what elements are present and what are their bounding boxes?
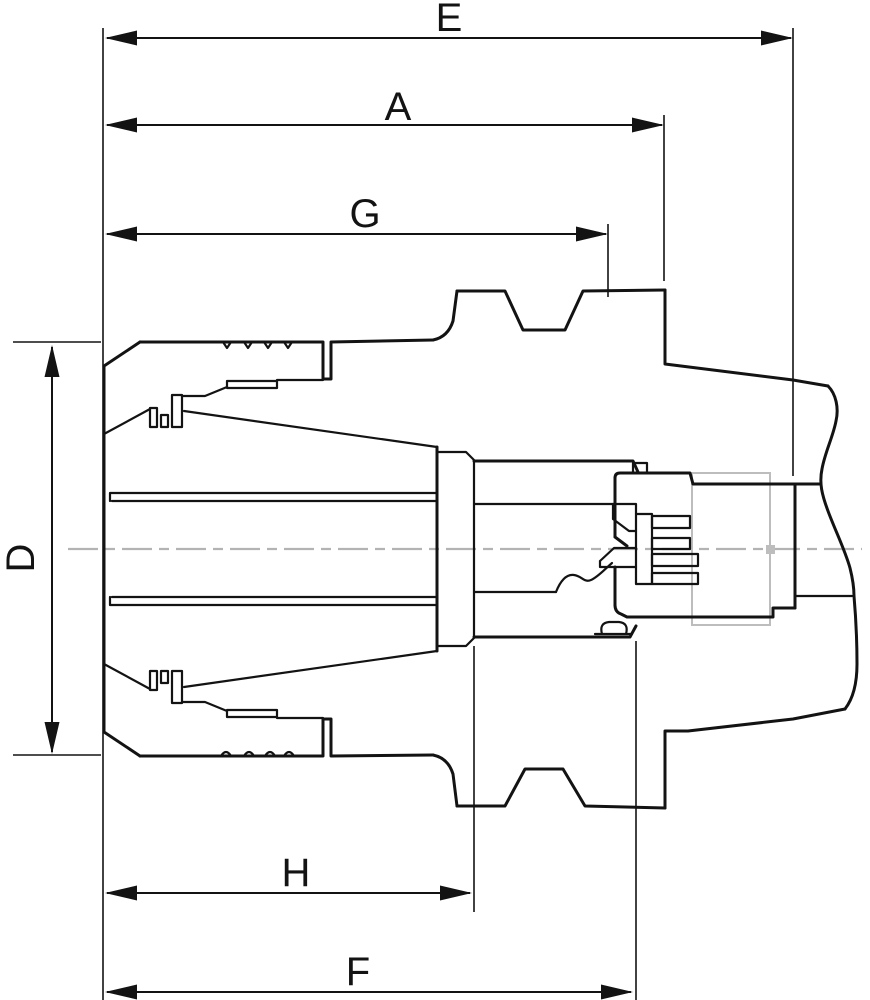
dimension-e: E [105, 0, 793, 46]
dimension-a: A [105, 85, 664, 133]
thread-bar-top [227, 381, 277, 388]
collet-slot-a-bottom [150, 671, 157, 690]
flange-rise-top [433, 291, 457, 340]
drawing-canvas: E A G D H F [0, 0, 870, 1000]
shaft-top-edge [474, 461, 638, 472]
collet-slot-a-top [150, 408, 157, 427]
cap-top-edge [615, 473, 820, 484]
taper-bottom-slope [665, 709, 845, 808]
dim-d-arrow-down-icon [45, 722, 60, 754]
dim-h-arrow-left-icon [105, 886, 137, 901]
dimension-d: D [0, 345, 60, 754]
dim-f-label: F [346, 950, 370, 994]
dim-d-arrow-up-icon [45, 345, 60, 377]
dim-f-arrow-left-icon [105, 985, 137, 1000]
dimension-h: H [105, 851, 472, 901]
taper-top-slope [665, 290, 828, 386]
comb-tooth-2 [652, 538, 690, 549]
nut-bottom-edge [140, 719, 433, 756]
cap-bottom-edge [615, 605, 795, 617]
collet-slot-c-bottom [172, 671, 182, 703]
dim-g-arrow-left-icon [105, 227, 137, 242]
dimension-g: G [105, 192, 608, 242]
dim-a-arrow-right-icon [632, 118, 664, 133]
comb-lower-wedge [600, 548, 636, 567]
reference-lines [68, 473, 862, 625]
dim-h-label: H [282, 851, 311, 895]
dimension-extension-lines [13, 28, 793, 1000]
thread-bar-bottom [227, 710, 277, 717]
comb-tooth-1 [652, 516, 690, 528]
phantom-center-mark [766, 545, 775, 554]
dim-a-arrow-left-icon [105, 118, 137, 133]
shaft-bottom-edge [474, 626, 636, 637]
dim-d-label: D [0, 544, 43, 573]
collet-slot-b-bottom [161, 671, 168, 683]
dim-e-arrow-left-icon [105, 31, 137, 46]
dim-e-arrow-right-icon [761, 31, 793, 46]
flange-top-v-notch [457, 290, 665, 330]
dim-e-label: E [436, 0, 463, 40]
dim-f-arrow-right-icon [601, 985, 633, 1000]
o-ring-seal [595, 622, 632, 634]
dim-a-label: A [385, 85, 412, 129]
collet-slot-b-top [161, 415, 168, 427]
dimension-f: F [105, 950, 633, 1000]
dim-g-arrow-right-icon [576, 227, 608, 242]
break-line [821, 386, 857, 709]
cap-front-face [615, 478, 627, 605]
dim-h-arrow-right-icon [440, 886, 472, 901]
technical-drawing: E A G D H F [0, 0, 870, 1000]
collet-slot-c-top [172, 395, 182, 427]
dim-g-label: G [349, 192, 380, 236]
flange-rise-bottom [433, 755, 457, 806]
flange-bottom-v-notch [457, 769, 665, 808]
